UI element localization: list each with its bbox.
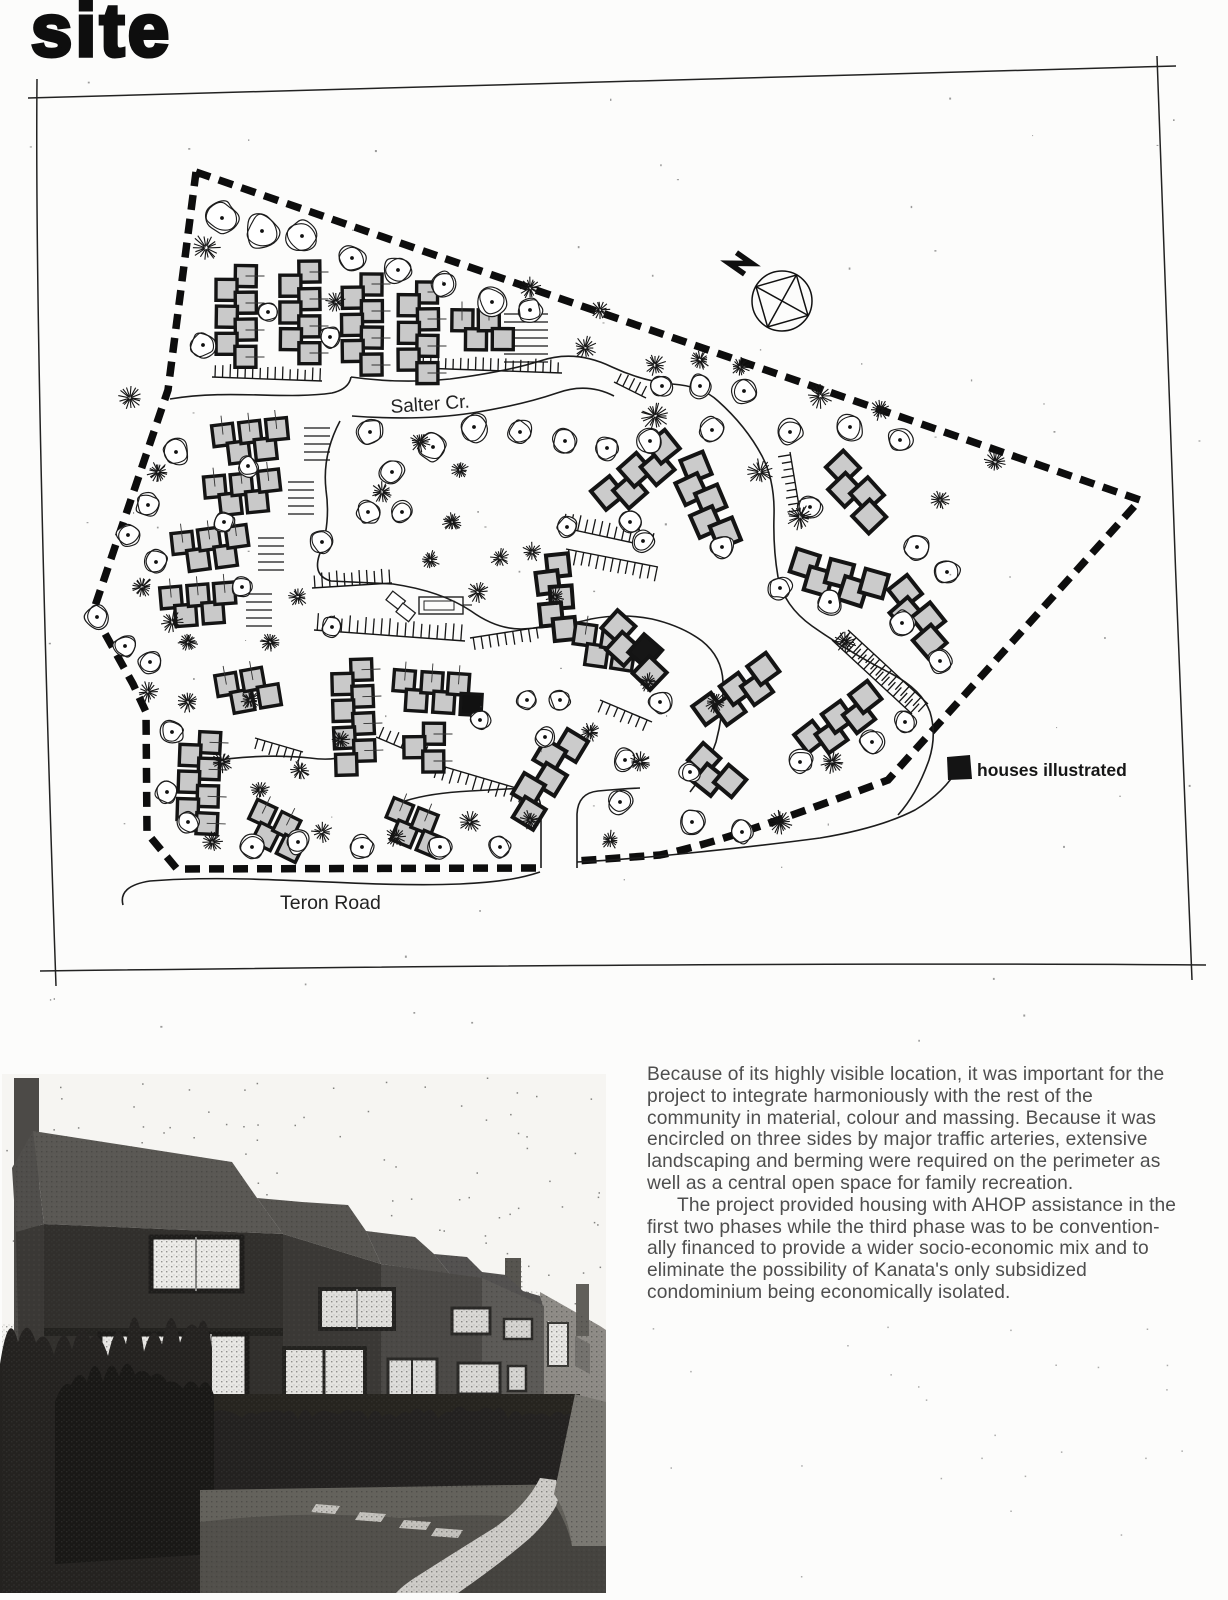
svg-text:Teron Road: Teron Road — [280, 892, 381, 914]
svg-text:houses illustrated: houses illustrated — [977, 760, 1127, 780]
svg-text:Salter Cr.: Salter Cr. — [390, 392, 470, 418]
